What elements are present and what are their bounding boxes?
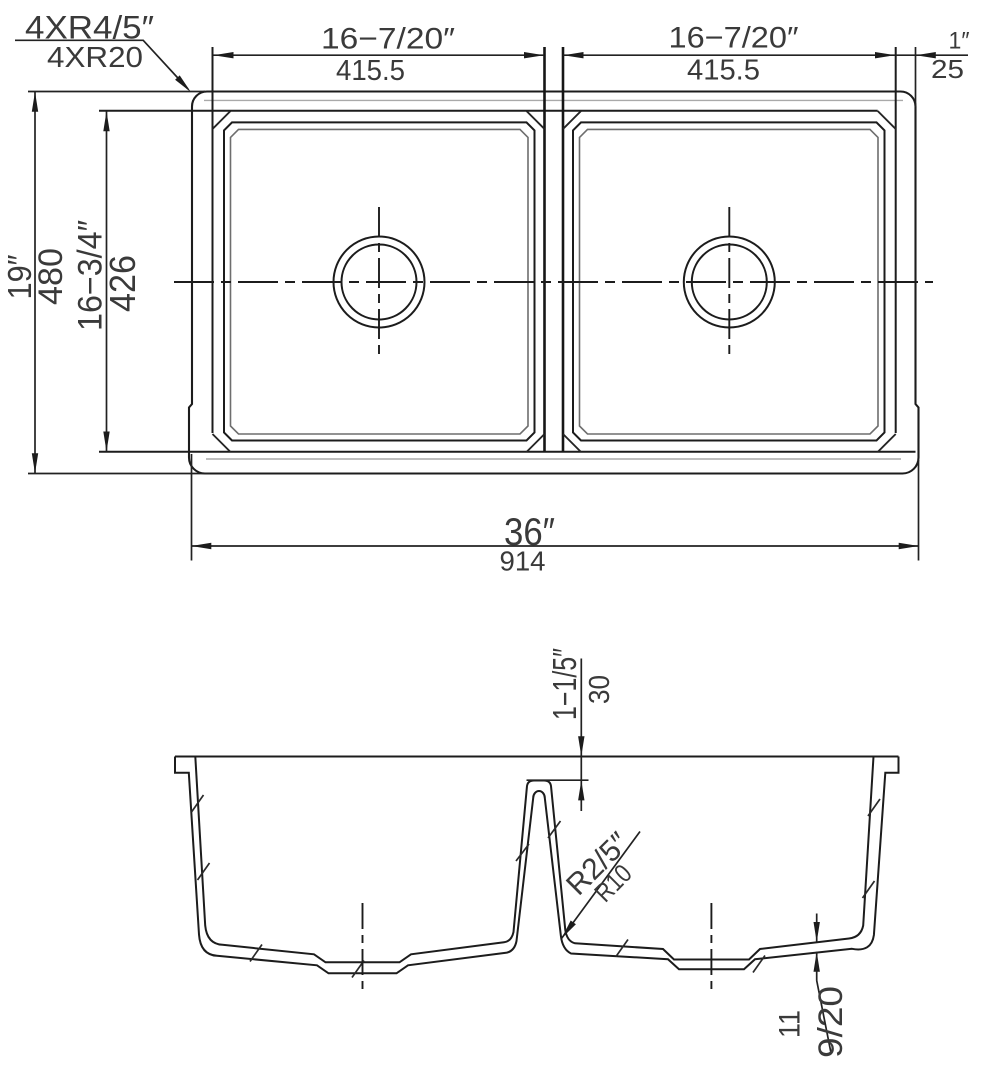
svg-text:415.5: 415.5 bbox=[687, 55, 760, 87]
svg-text:480: 480 bbox=[32, 248, 70, 305]
svg-text:9/20: 9/20 bbox=[812, 986, 850, 1058]
svg-text:914: 914 bbox=[500, 546, 546, 577]
svg-text:30: 30 bbox=[584, 675, 616, 704]
svg-text:11: 11 bbox=[774, 1010, 807, 1038]
svg-text:1−1/5″: 1−1/5″ bbox=[546, 648, 583, 720]
svg-text:415.5: 415.5 bbox=[336, 55, 405, 87]
svg-text:426: 426 bbox=[102, 255, 143, 312]
svg-text:16−7/20″: 16−7/20″ bbox=[321, 22, 455, 55]
svg-text:16−7/20″: 16−7/20″ bbox=[669, 22, 799, 55]
svg-text:4XR4/5″: 4XR4/5″ bbox=[25, 10, 154, 46]
svg-text:25: 25 bbox=[931, 54, 964, 84]
svg-text:1″: 1″ bbox=[949, 27, 970, 54]
svg-text:4XR20: 4XR20 bbox=[47, 42, 143, 74]
